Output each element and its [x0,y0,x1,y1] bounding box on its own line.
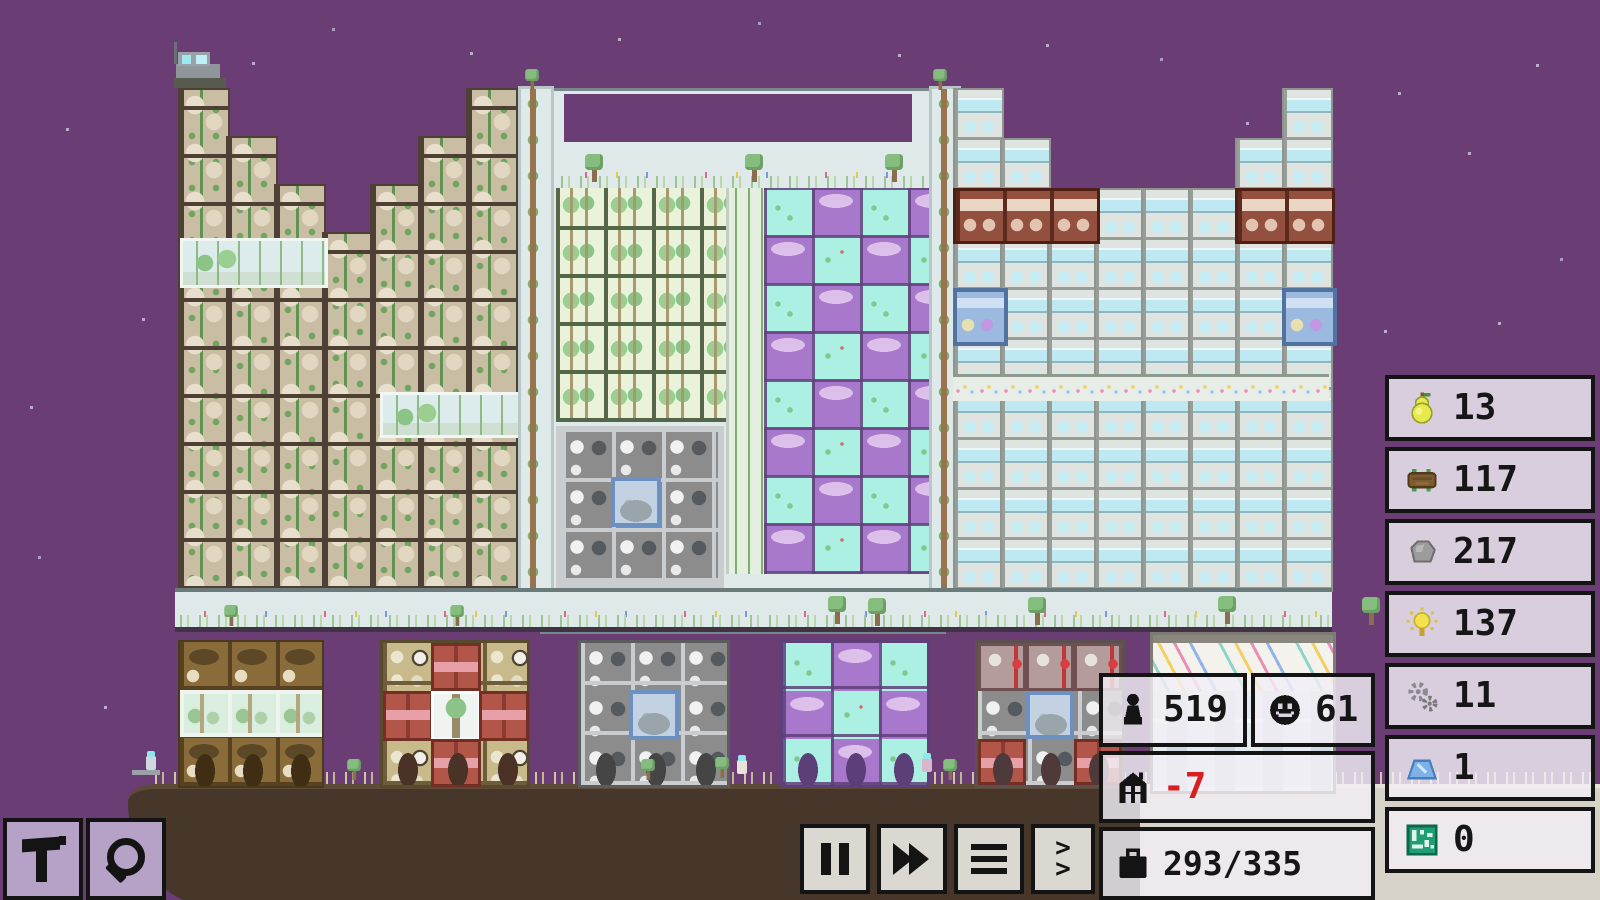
tree [1027,597,1047,625]
food-count: 13 [1453,390,1496,426]
machine-antenna [174,42,177,64]
garden-room[interactable] [380,392,522,438]
doors [180,734,322,786]
energy-count: 137 [1453,606,1518,642]
resource-computer-chips[interactable]: 0 [1385,807,1595,873]
pear-icon [1405,391,1439,425]
resource-wood[interactable]: 117 [1385,447,1595,513]
tree [347,759,362,780]
person-icon [1115,692,1151,728]
pause-icon [821,843,849,875]
log-icon [1405,463,1439,497]
citizen [737,760,747,774]
happiness-value: 61 [1315,692,1358,728]
stone-storage-room[interactable] [611,477,661,527]
tree [1361,597,1381,625]
left-tower-column[interactable] [178,88,230,592]
left-tower-column[interactable] [226,136,278,592]
citizen [146,756,156,770]
tree [224,605,239,626]
house-icon [1115,769,1151,805]
expand-button[interactable]: >> [1031,824,1095,894]
machine-base [174,78,226,88]
tree [1217,596,1237,624]
left-tower-column[interactable] [466,88,518,592]
machine-window [196,55,207,64]
happiness-panel[interactable]: 61 [1251,673,1375,747]
shop-rooms[interactable] [1235,188,1335,244]
tree [641,759,656,780]
chevrons-icon: >> [1055,838,1071,880]
lamp-room [978,643,1026,691]
machine-window [182,55,191,64]
build-tool-button[interactable] [3,818,83,900]
crystal-count: 1 [1453,750,1475,786]
stone-icon [1405,535,1439,569]
stars [0,0,3,3]
citizen [922,758,932,772]
warehouse-building[interactable] [178,640,324,788]
apartment-greenhouse-rooms[interactable] [764,188,938,574]
grass-tufts [556,176,928,188]
resource-machine-parts[interactable]: 11 [1385,663,1595,729]
jobs-panel[interactable]: 293/335 [1099,827,1375,900]
center-tower-courtyard [564,94,912,142]
doors [783,733,927,785]
desk [132,770,160,775]
jobs-value: 293/335 [1163,847,1302,880]
stone-count: 217 [1453,534,1518,570]
park-room[interactable] [180,238,328,288]
party-hall-roof [1153,635,1333,643]
housing-value: -7 [1163,769,1206,805]
center-tower-roof-garden [556,142,928,188]
briefcase-icon [1115,846,1151,882]
tree [933,69,948,90]
tree [525,69,540,90]
grass-tufts [175,615,1332,627]
left-tower-column[interactable] [418,136,470,592]
greenhouse-floor [180,690,322,737]
magnifier-icon [102,835,150,883]
pause-button[interactable] [800,824,870,894]
tree [943,759,958,780]
tree [884,154,904,182]
inspect-tool-button[interactable] [86,818,166,900]
population-panel[interactable]: 519 [1099,673,1247,747]
clock-house-building[interactable] [380,640,530,788]
fast-forward-icon [893,843,931,875]
hammer-icon [20,834,66,884]
left-tower-column[interactable] [370,184,422,592]
tree [715,757,730,778]
machine-parts-count: 11 [1453,678,1496,714]
wood-count: 117 [1453,462,1518,498]
bulb-icon [1405,607,1439,641]
population-value: 519 [1163,692,1228,728]
special-room[interactable] [1282,288,1337,346]
game-viewport: 13 117 217 137 11 1 0 519 61 -7 293/335 [0,0,1600,900]
crystal-icon [1405,751,1439,785]
gears-icon [1405,679,1439,713]
resource-food[interactable]: 13 [1385,375,1595,441]
fast-forward-button[interactable] [877,824,947,894]
machine-body [176,64,220,78]
tree [744,154,764,182]
chip-icon [1405,823,1439,857]
flower-garden-floor [953,374,1329,401]
menu-icon [971,844,1007,874]
resource-crystal[interactable]: 1 [1385,735,1595,801]
lamp-room [1026,643,1074,691]
tree [867,598,887,626]
doors [383,733,527,785]
stone-storage-room [1026,691,1074,739]
smiley-icon [1267,692,1303,728]
menu-button[interactable] [954,824,1024,894]
tree [584,154,604,182]
resource-energy[interactable]: 137 [1385,591,1595,657]
shop-rooms[interactable] [953,188,1100,244]
housing-panel[interactable]: -7 [1099,751,1375,823]
special-room[interactable] [953,288,1008,346]
computer-chips-count: 0 [1453,822,1475,858]
tower-base-garden [175,588,1332,632]
red-room [431,643,481,691]
trellis-column [518,86,554,596]
resource-stone[interactable]: 217 [1385,519,1595,585]
apartment-greenhouse-building[interactable] [780,640,930,788]
tree [827,596,847,624]
tree [450,605,465,626]
crate-floor [180,642,322,690]
left-tower-column[interactable] [322,232,374,592]
